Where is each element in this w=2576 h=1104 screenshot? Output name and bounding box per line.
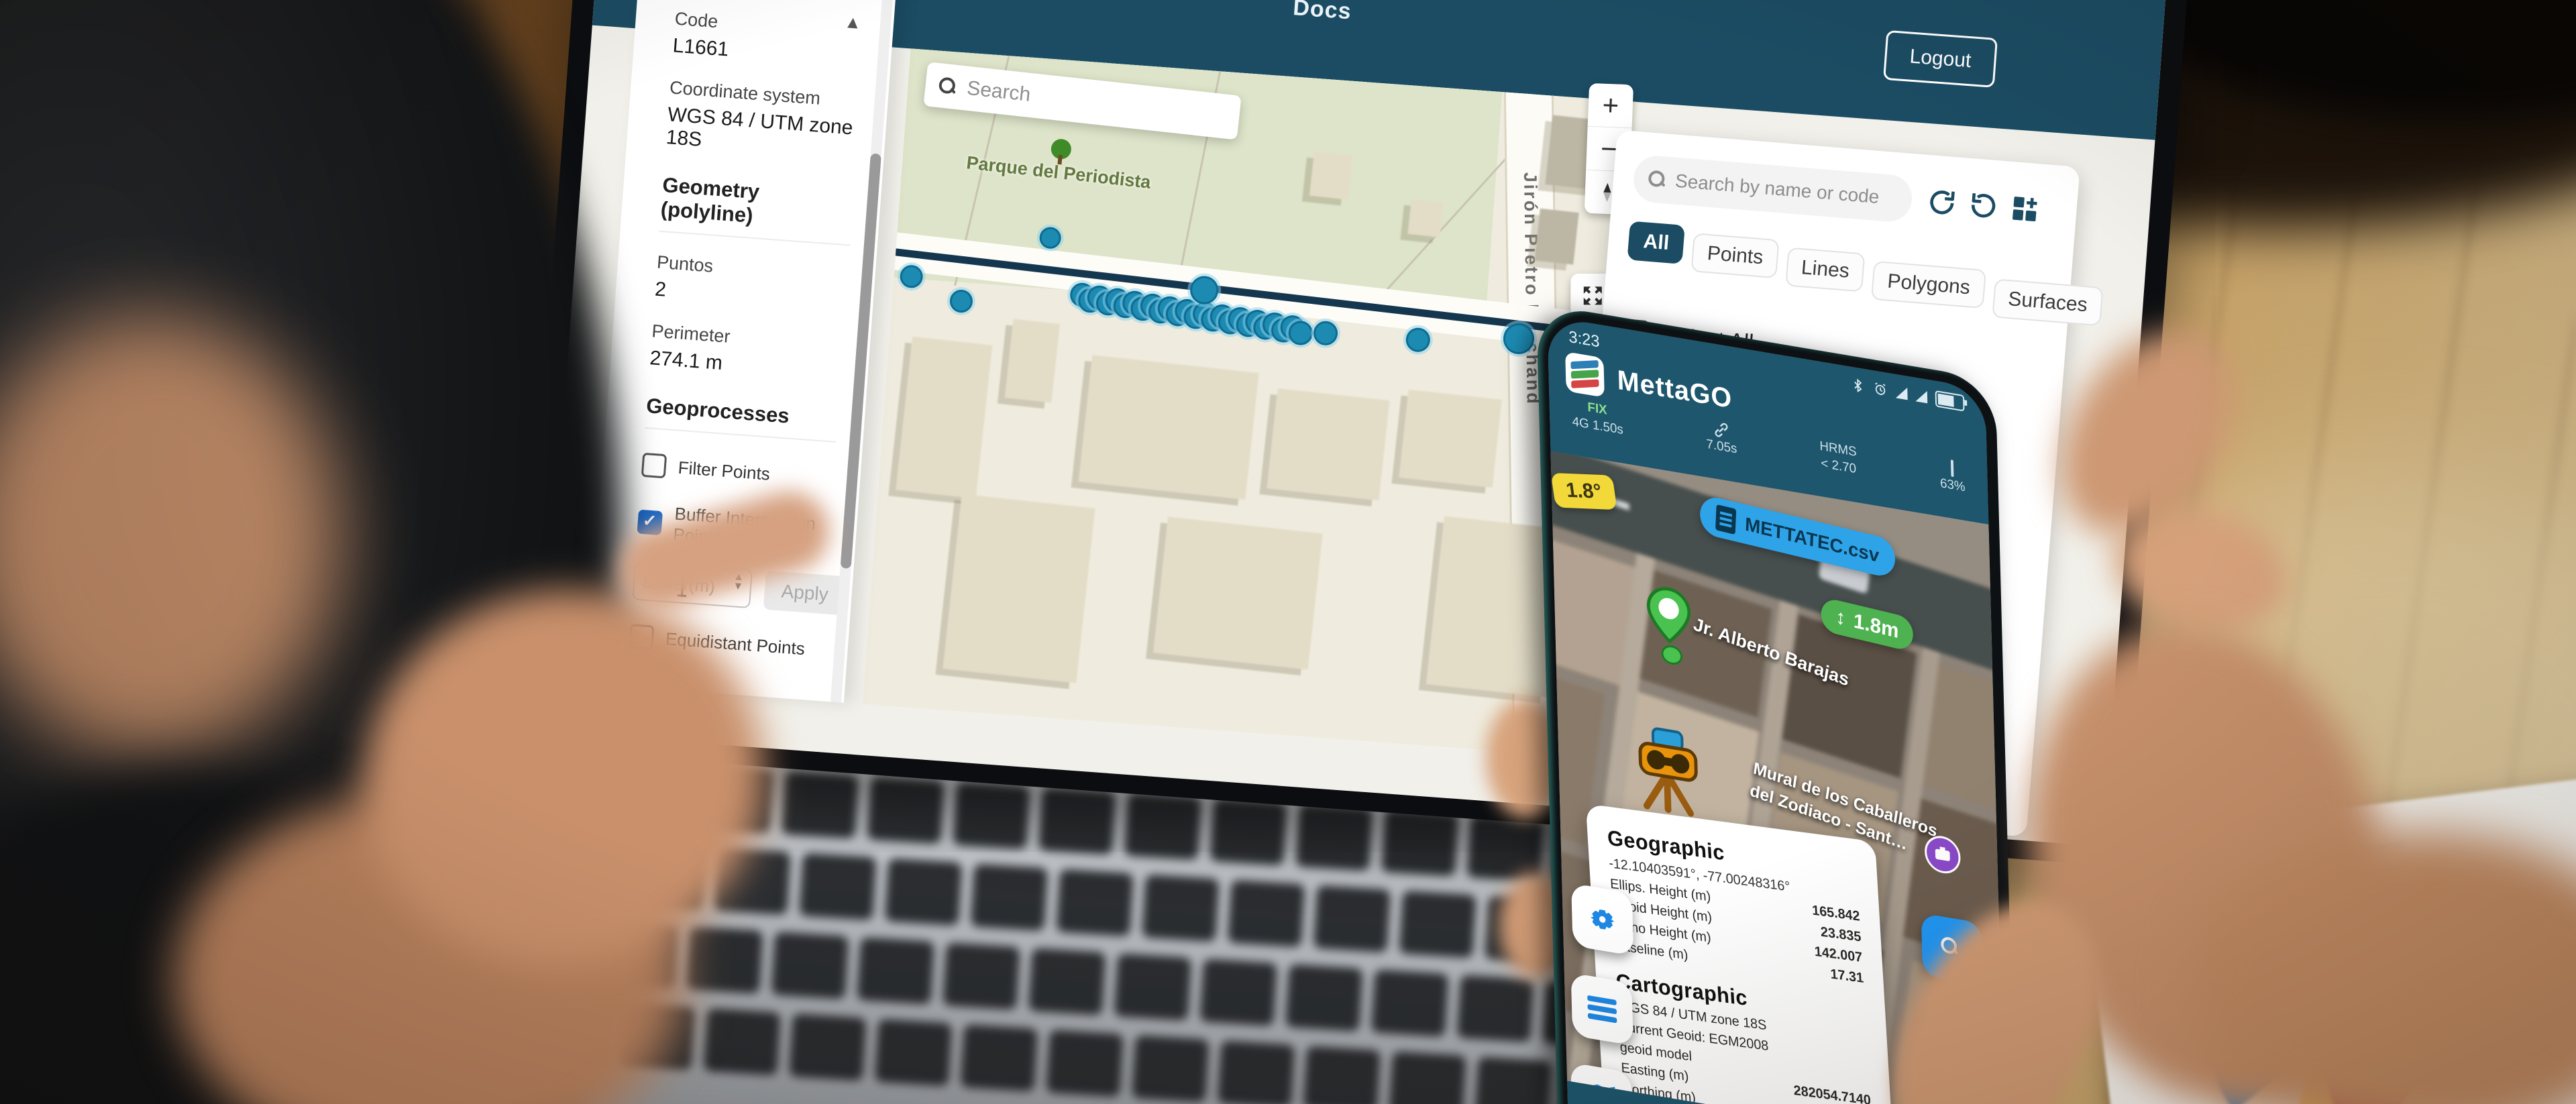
map-building: [1267, 388, 1389, 500]
bluetooth-icon: [1850, 377, 1865, 394]
buffer-point-dot[interactable]: [899, 264, 924, 289]
filter-points-checkbox[interactable]: [641, 453, 667, 479]
tab-lines[interactable]: Lines: [1785, 247, 1866, 292]
map-building: [896, 337, 992, 499]
filter-points-label: Filter Points: [678, 457, 771, 484]
buffer-point-dot[interactable]: [949, 288, 974, 314]
photo-scene: Docs Logout Parque del Periodista Jirón …: [0, 0, 2576, 1104]
coordinates-card: Geographic -12.10403591°, -77.00248316° …: [1586, 804, 1900, 1104]
import-icon[interactable]: [1925, 186, 1959, 219]
scroll-up-icon[interactable]: ▲: [843, 11, 862, 34]
device-battery-icon: [1951, 459, 1954, 477]
map-building: [943, 494, 1095, 683]
feature-type-tabs: All Points Lines Polygons Surfaces: [1625, 221, 2053, 321]
fullscreen-icon: [1580, 284, 1605, 308]
gear-icon: [1586, 900, 1619, 938]
coordinate-system-value: WGS 84 / UTM zone 18S: [665, 103, 887, 165]
tab-polygons[interactable]: Polygons: [1871, 261, 1986, 309]
buffer-point-dot[interactable]: [1405, 327, 1432, 353]
alarm-icon: [1873, 380, 1888, 398]
tab-points[interactable]: Points: [1691, 233, 1780, 278]
device-battery-value: 63%: [1940, 476, 1966, 496]
signal-icon: [1895, 386, 1907, 400]
antenna-height-value: 1.8m: [1853, 610, 1899, 643]
map-building: [1399, 390, 1501, 488]
signal-icon: [1915, 389, 1927, 403]
tree-icon: [1050, 138, 1072, 160]
map-building: [1079, 355, 1259, 500]
feature-search-input[interactable]: Search by name or code: [1632, 154, 1914, 223]
nav-item-docs[interactable]: Docs: [1292, 0, 1352, 25]
map-building: [1005, 319, 1060, 403]
map-search-placeholder: Search: [966, 77, 1032, 107]
tab-surfaces[interactable]: Surfaces: [1992, 278, 2104, 326]
file-icon: [1715, 504, 1736, 535]
web-map[interactable]: Parque del Periodista Jirón Pietro March…: [863, 48, 1638, 757]
map-building: [1309, 152, 1353, 200]
total-station-icon: [1626, 712, 1708, 824]
app-logo: [1565, 351, 1605, 398]
map-building: [1407, 199, 1443, 237]
buffer-point-dot[interactable]: [1312, 320, 1339, 347]
feature-search-placeholder: Search by name or code: [1674, 170, 1880, 208]
list-icon: [1587, 995, 1617, 1024]
search-icon: [1648, 170, 1666, 188]
location-pin-icon: [1642, 582, 1696, 657]
height-arrow-icon: ↕: [1835, 606, 1846, 631]
link-value: 7.05s: [1706, 437, 1737, 459]
geometry-heading: Geometry (polyline): [659, 173, 855, 246]
add-layer-grid-icon[interactable]: [2008, 192, 2042, 226]
map-building: [1153, 516, 1323, 669]
map-building: [1535, 209, 1579, 265]
bearing-badge: 1.8°: [1551, 473, 1617, 510]
logout-button[interactable]: Logout: [1883, 30, 1998, 88]
zoom-in-button[interactable]: +: [1588, 83, 1633, 128]
geoprocesses-heading: Geoprocesses: [645, 394, 839, 443]
tab-all[interactable]: All: [1627, 221, 1686, 264]
apply-button[interactable]: Apply: [763, 571, 847, 616]
export-icon[interactable]: [1967, 189, 2000, 223]
search-icon: [938, 76, 957, 96]
